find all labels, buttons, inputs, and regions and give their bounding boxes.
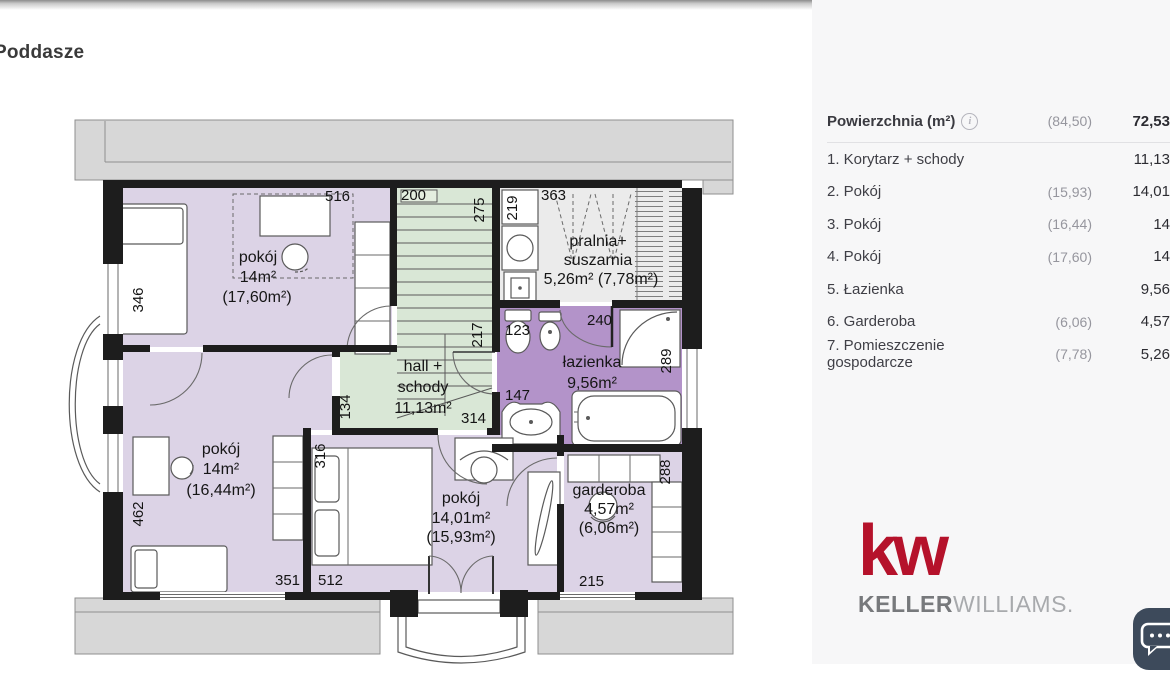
room-label: schody	[398, 379, 449, 396]
row-name: 6. Garderoba	[827, 313, 1014, 330]
table-row: 3. Pokój (16,44) 14	[827, 208, 1170, 241]
row-projected: (17,60)	[1014, 249, 1092, 265]
dim-346: 346	[130, 287, 147, 312]
page-title: Poddasze	[0, 42, 84, 64]
dim-219: 219	[504, 195, 521, 220]
keller-williams-logo: kw KELLERWILLIAMS.	[858, 519, 1128, 618]
kw-brand-primary: KELLER	[858, 591, 953, 617]
double-bed-icon	[312, 448, 432, 565]
kw-logo-name: KELLERWILLIAMS.	[858, 591, 1128, 618]
row-area: 14,01	[1092, 183, 1170, 200]
listing-page: { "title": "Poddasze", "panel": { "heade…	[0, 0, 1170, 664]
bay-window-outline	[69, 316, 100, 492]
row-area: 11,13	[1092, 151, 1170, 168]
row-name: 5. Łazienka	[827, 281, 1014, 298]
chat-widget-button[interactable]	[1133, 608, 1170, 670]
wardrobe-icon-2	[273, 436, 303, 540]
dim-351: 351	[275, 572, 300, 589]
row-name: 2. Pokój	[827, 183, 1014, 200]
table-row: 5. Łazienka 9,56	[827, 273, 1170, 306]
area-table-header: Powierzchnia (m²) i (84,50) 72,53	[827, 104, 1170, 138]
bathtub-icon	[572, 391, 681, 446]
room-projected: (17,60m²)	[222, 289, 291, 306]
room-label: suszarnia	[564, 252, 633, 269]
room-label: garderoba	[573, 482, 646, 499]
dim-363: 363	[541, 187, 566, 204]
row-projected: (7,78)	[1014, 346, 1092, 362]
room-area: 9,56m²	[567, 375, 617, 392]
floor-plan: 516 200 275 363 219 346 217 123 240 289 …	[55, 104, 765, 664]
info-icon[interactable]: i	[961, 113, 978, 130]
room-area: 11,13m²	[394, 400, 452, 417]
dim-275: 275	[471, 197, 488, 222]
dim-217: 217	[469, 322, 486, 347]
kw-logo-mark: kw	[858, 519, 1128, 583]
room-label: pokój	[442, 490, 480, 507]
dim-200: 200	[401, 187, 426, 204]
room-area: 14,01m²	[432, 510, 491, 527]
table-row: 7. Pomieszczenie gospodarcze (7,78) 5,26	[827, 338, 1170, 371]
room-projected: (16,44m²)	[186, 482, 255, 499]
table-row: 4. Pokój (17,60) 14	[827, 241, 1170, 274]
area-summary-panel: Powierzchnia (m²) i (84,50) 72,53 1. Kor…	[812, 0, 1170, 664]
room-area: 14m²	[203, 461, 240, 478]
header-projected-total: (84,50)	[1014, 113, 1092, 129]
dim-123: 123	[505, 322, 530, 339]
row-projected: (6,06)	[1014, 314, 1092, 330]
wardrobe-icon	[355, 222, 390, 354]
kw-brand-secondary: WILLIAMS.	[953, 591, 1074, 617]
row-area: 5,26	[1092, 346, 1170, 363]
dim-134: 134	[337, 394, 354, 419]
row-projected: (16,44)	[1014, 216, 1092, 232]
row-name: 4. Pokój	[827, 248, 1014, 265]
dim-516: 516	[325, 188, 350, 205]
row-area: 14	[1092, 248, 1170, 265]
header-area-total: 72,53	[1092, 113, 1170, 130]
bidet-icon	[539, 312, 561, 350]
dim-316: 316	[312, 443, 329, 468]
dim-314: 314	[461, 410, 486, 427]
row-name: 1. Korytarz + schody	[827, 151, 1014, 168]
bed-icon	[115, 204, 187, 334]
mirror-icon	[528, 472, 560, 565]
room-label: pokój	[202, 441, 240, 458]
table-row: 1. Korytarz + schody 11,13	[827, 143, 1170, 176]
area-table-title-text: Powierzchnia (m²)	[827, 113, 955, 130]
dim-215: 215	[579, 573, 604, 590]
row-area: 14	[1092, 216, 1170, 233]
dim-147: 147	[505, 387, 530, 404]
room-label: pralnia+	[569, 233, 626, 250]
row-name: 7. Pomieszczenie gospodarcze	[827, 337, 1014, 371]
row-area: 9,56	[1092, 281, 1170, 298]
room-label: hall +	[404, 358, 443, 375]
dim-512: 512	[318, 572, 343, 589]
dim-240: 240	[587, 312, 612, 329]
table-row: 2. Pokój (15,93) 14,01	[827, 176, 1170, 209]
dim-289: 289	[658, 348, 675, 373]
room-area: 5,26m² (7,78m²)	[544, 271, 659, 288]
row-name: 3. Pokój	[827, 216, 1014, 233]
room-projected: (15,93m²)	[426, 529, 495, 546]
area-table: Powierzchnia (m²) i (84,50) 72,53 1. Kor…	[827, 104, 1170, 371]
row-area: 4,57	[1092, 313, 1170, 330]
room-area: 4,57m²	[584, 501, 634, 518]
room-label: łazienka	[563, 354, 622, 371]
room-label: pokój	[239, 249, 277, 266]
room-projected: (6,06m²)	[579, 520, 639, 537]
chat-bubble-icon	[1133, 608, 1170, 670]
single-bed-icon	[131, 546, 227, 592]
room-area: 14m²	[240, 269, 277, 286]
table-row: 6. Garderoba (6,06) 4,57	[827, 306, 1170, 339]
floor-plan-svg: 516 200 275 363 219 346 217 123 240 289 …	[55, 104, 765, 664]
dim-288: 288	[657, 459, 674, 484]
area-table-title: Powierzchnia (m²) i	[827, 113, 1014, 130]
dim-462: 462	[130, 501, 147, 526]
row-projected: (15,93)	[1014, 184, 1092, 200]
